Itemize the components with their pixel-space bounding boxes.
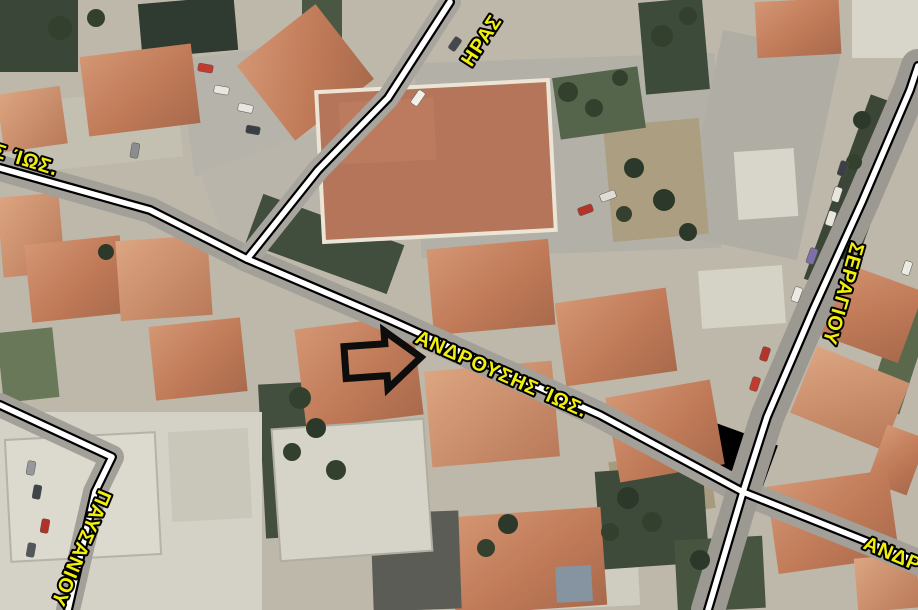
aerial-map: ΗΡΑΣ Σ ΊΩΣ. ΑΝΔΡΟΥΣΗΣ ΊΩΣ. ΣΕΡΑΓΙΟΥ ΠΑΥΣ… [0, 0, 918, 610]
map-canvas: ΗΡΑΣ Σ ΊΩΣ. ΑΝΔΡΟΥΣΗΣ ΊΩΣ. ΣΕΡΑΓΙΟΥ ΠΑΥΣ… [0, 0, 918, 610]
